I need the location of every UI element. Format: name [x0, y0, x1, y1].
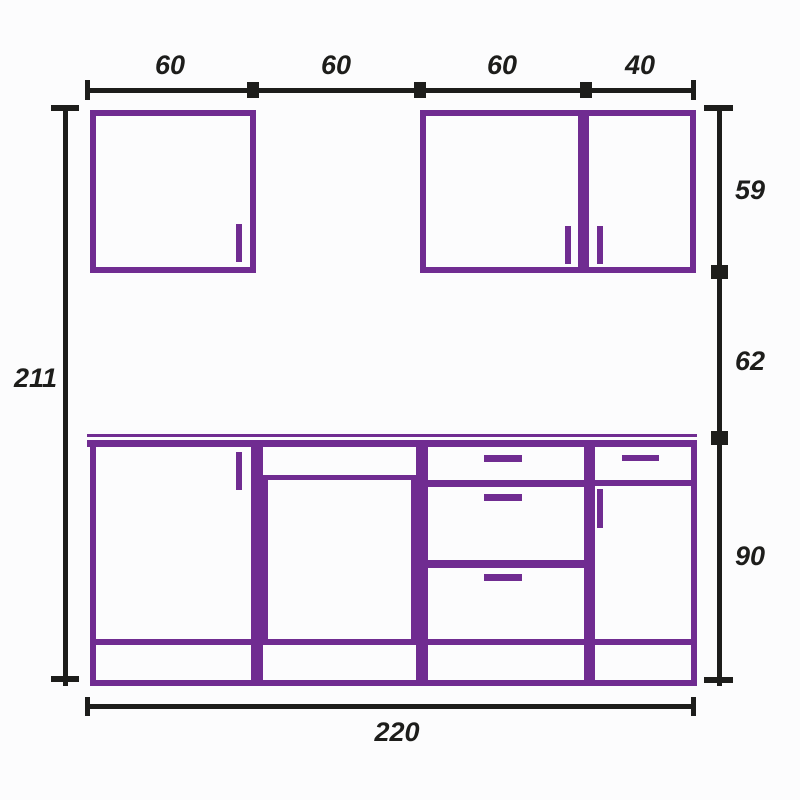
base-bottom-line [90, 680, 697, 686]
right-dimension-line [717, 108, 722, 686]
top-dim-label-4: 40 [610, 52, 670, 79]
left-dimension-line [63, 108, 68, 686]
right-dim-label-gap: 62 [735, 348, 765, 375]
top-dim-tick-end [691, 80, 696, 100]
upper-cabinet-right-right-door-handle [597, 226, 603, 264]
upper-cabinet-left-door-handle [236, 224, 242, 262]
top-dim-label-3: 60 [472, 52, 532, 79]
top-dim-tick-start [85, 80, 90, 100]
right-dim-tick-top [704, 105, 733, 111]
base-unit2-door [263, 475, 416, 645]
left-dim-label: 211 [2, 365, 57, 392]
right-dim-tick-mid2 [711, 431, 728, 445]
right-dim-tick-mid1 [711, 265, 728, 279]
countertop-top-edge [87, 434, 697, 437]
bottom-dimension-line [87, 704, 696, 709]
countertop [87, 440, 697, 447]
bottom-dim-tick-start [85, 697, 90, 716]
top-dim-label-2: 60 [306, 52, 366, 79]
base-unit3-drawer3-handle [484, 574, 522, 581]
base-divider-3 [584, 447, 595, 686]
right-dim-label-upper: 59 [735, 177, 765, 204]
base-unit4-drawer-divider [595, 480, 691, 486]
base-unit3-drawer-divider-2 [428, 560, 584, 568]
right-dim-tick-bottom [704, 677, 733, 683]
top-dim-tick-4 [580, 82, 592, 98]
top-dim-tick-2 [247, 82, 259, 98]
bottom-dim-label: 220 [352, 719, 442, 746]
top-dimension-line [87, 88, 696, 93]
upper-cabinet-left [90, 110, 256, 273]
base-unit1-door-handle [236, 452, 242, 490]
left-dim-tick-bottom [51, 676, 79, 682]
right-dim-label-base: 90 [735, 543, 765, 570]
base-right-side [691, 447, 697, 686]
upper-cabinet-right [420, 110, 696, 273]
base-divider-2 [416, 447, 428, 686]
upper-cabinet-right-left-door-handle [565, 226, 571, 264]
bottom-dim-tick-end [691, 697, 696, 716]
base-unit3-drawer-divider-1 [428, 480, 584, 487]
base-divider-1 [251, 447, 263, 686]
top-dim-tick-3 [414, 82, 426, 98]
upper-cabinet-right-divider [578, 112, 589, 271]
base-unit3-drawer1-handle [484, 455, 522, 462]
cabinet-elevation-drawing: 60 60 60 40 211 59 62 90 220 [0, 0, 800, 800]
base-left-side [90, 447, 96, 686]
base-unit4-door-handle [597, 489, 603, 528]
base-unit4-drawer-handle [622, 455, 659, 461]
left-dim-tick-top [51, 105, 79, 111]
base-unit3-drawer2-handle [484, 494, 522, 501]
top-dim-label-1: 60 [140, 52, 200, 79]
